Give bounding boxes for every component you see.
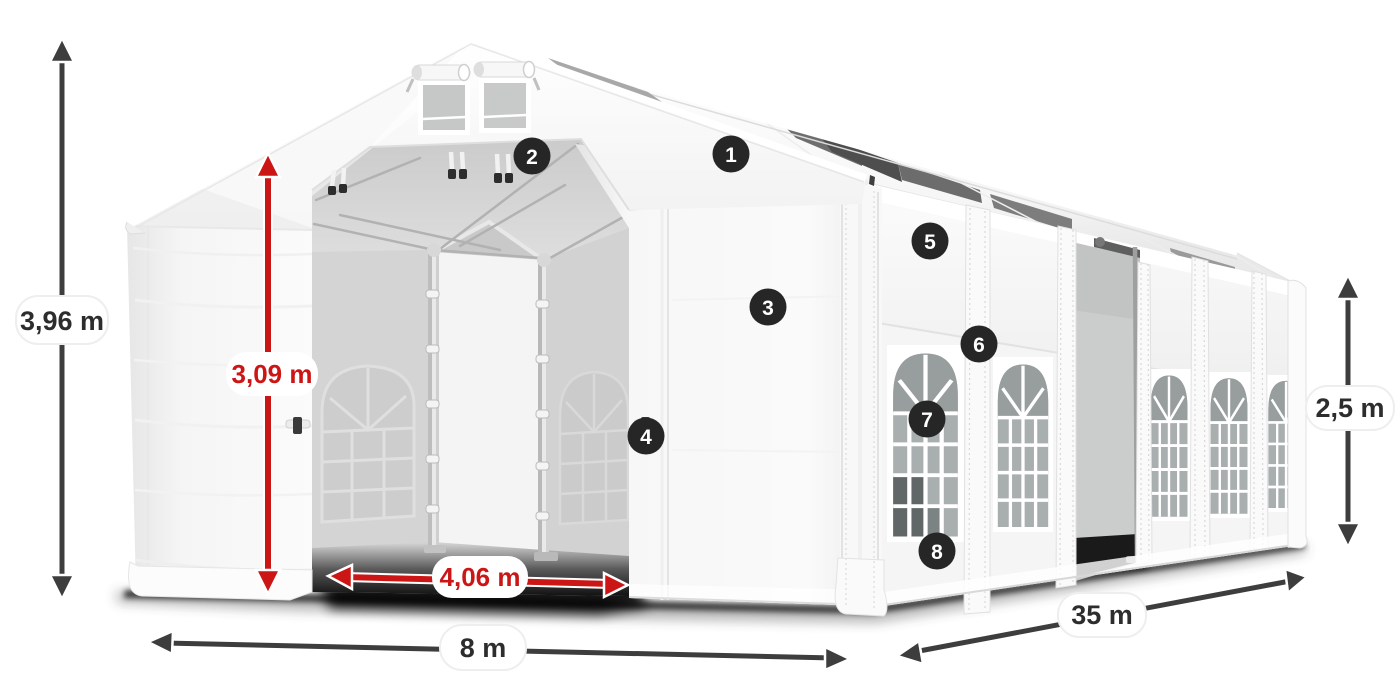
svg-text:8: 8 [931,541,943,564]
svg-text:5: 5 [924,231,936,254]
svg-text:4: 4 [640,426,652,449]
svg-text:6: 6 [973,334,985,357]
svg-text:2,5 m: 2,5 m [1315,393,1384,423]
svg-text:8 m: 8 m [460,633,507,663]
svg-text:3,96 m: 3,96 m [20,306,104,336]
svg-text:3,09 m: 3,09 m [232,359,313,389]
svg-text:7: 7 [921,409,933,432]
svg-text:1: 1 [725,144,737,167]
svg-text:4,06 m: 4,06 m [440,562,521,592]
svg-text:2: 2 [526,146,538,169]
svg-text:3: 3 [762,297,774,320]
svg-text:35 m: 35 m [1071,600,1133,630]
